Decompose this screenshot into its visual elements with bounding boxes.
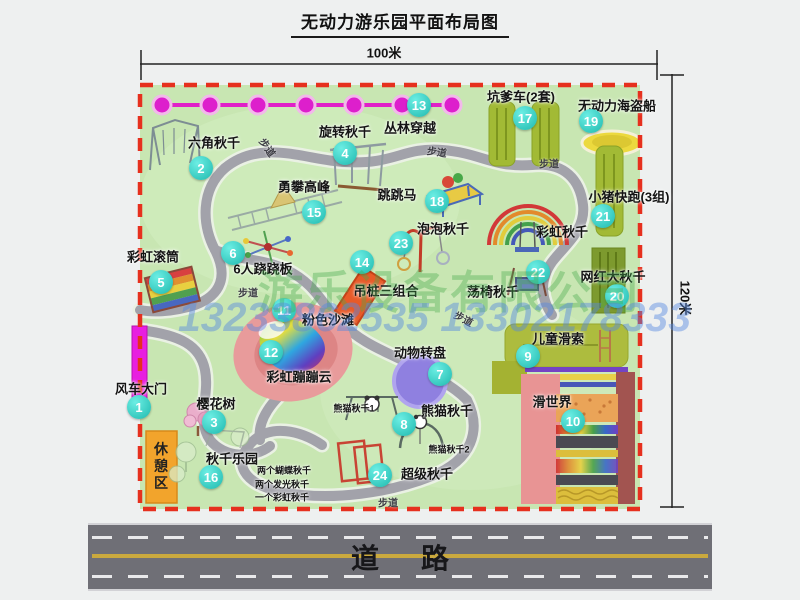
label-hex-swing: 六角秋千 (188, 133, 240, 152)
label-pit-car: 坑爹车(2套) (487, 87, 555, 106)
label-super-swing: 超级秋千 (401, 464, 453, 483)
label-bounce-cloud: 彩虹蹦蹦云 (266, 367, 331, 386)
badge-21: 21 (591, 204, 615, 228)
badge-3: 3 (202, 410, 226, 434)
label-seesaw: 6人跷跷板 (233, 259, 292, 278)
badge-17: 17 (513, 106, 537, 130)
label-panda-swing-2: 熊猫秋千2 (428, 443, 469, 456)
badge-24: 24 (368, 463, 392, 487)
width-dimension-label: 100米 (367, 43, 402, 62)
badge-16: 16 (199, 465, 223, 489)
label-rotary-swing: 旋转秋千 (319, 122, 371, 141)
label-kids-zipline: 儿童滑索 (532, 329, 584, 348)
badge-8: 8 (392, 412, 416, 436)
label-panda-swing: 熊猫秋千 (421, 401, 473, 420)
label-panda-swing-1: 熊猫秋千1 (333, 402, 374, 415)
label-net-swing: 网红大秋千 (580, 267, 645, 286)
label-piggy-run: 小猪快跑(3组) (589, 187, 670, 206)
label-animal-turntable: 动物转盘 (394, 343, 446, 362)
label-bubble-swing: 泡泡秋千 (417, 219, 469, 238)
badge-18: 18 (425, 189, 449, 213)
label-climbing: 勇攀高峰 (278, 177, 330, 196)
label-slide-world: 滑世界 (532, 392, 571, 411)
walkway-label: 步道 (238, 285, 258, 300)
badge-2: 2 (189, 156, 213, 180)
badge-7: 7 (428, 362, 452, 386)
park-layout-map: 无动力游乐园平面布局图 100米 120米 (0, 0, 800, 600)
badge-4: 4 (333, 141, 357, 165)
badge-5: 5 (149, 270, 173, 294)
walkway-label: 步道 (426, 142, 448, 160)
badge-14: 14 (350, 250, 374, 274)
height-dimension-label: 120米 (677, 281, 696, 316)
page-title: 无动力游乐园平面布局图 (291, 8, 509, 38)
badge-10: 10 (561, 409, 585, 433)
badge-6: 6 (221, 241, 245, 265)
label-rest-area: 休憩区 (151, 442, 171, 493)
label-rainbow-roller: 彩虹滚筒 (127, 247, 179, 266)
badge-22: 22 (526, 260, 550, 284)
label-jump-horse: 跳跳马 (377, 185, 416, 204)
label-hanging-pile: 吊桩三组合 (353, 281, 418, 300)
badge-11: 11 (272, 298, 296, 322)
label-swing-chair: 荡椅秋千 (467, 282, 519, 301)
badge-20: 20 (605, 284, 629, 308)
label-rainbow-swing: 彩虹秋千 (536, 222, 588, 241)
road-label: 道路 (309, 537, 491, 577)
swing-park-note-2: 两个发光秋千 (255, 478, 309, 491)
label-pink-beach: 粉色沙滩 (302, 310, 354, 329)
badge-23: 23 (389, 231, 413, 255)
badge-15: 15 (302, 200, 326, 224)
badge-9: 9 (516, 344, 540, 368)
badge-19: 19 (579, 109, 603, 133)
walkway-label: 步道 (378, 495, 398, 510)
badge-13: 13 (407, 93, 431, 117)
badge-1: 1 (127, 395, 151, 419)
swing-park-note-1: 两个蝴蝶秋千 (257, 464, 311, 477)
badge-12: 12 (259, 340, 283, 364)
label-jungle-crossing: 丛林穿越 (384, 118, 436, 137)
walkway-label: 步道 (539, 156, 559, 171)
swing-park-note-3: 一个彩虹秋千 (255, 491, 309, 504)
road: 道路 (88, 523, 712, 591)
